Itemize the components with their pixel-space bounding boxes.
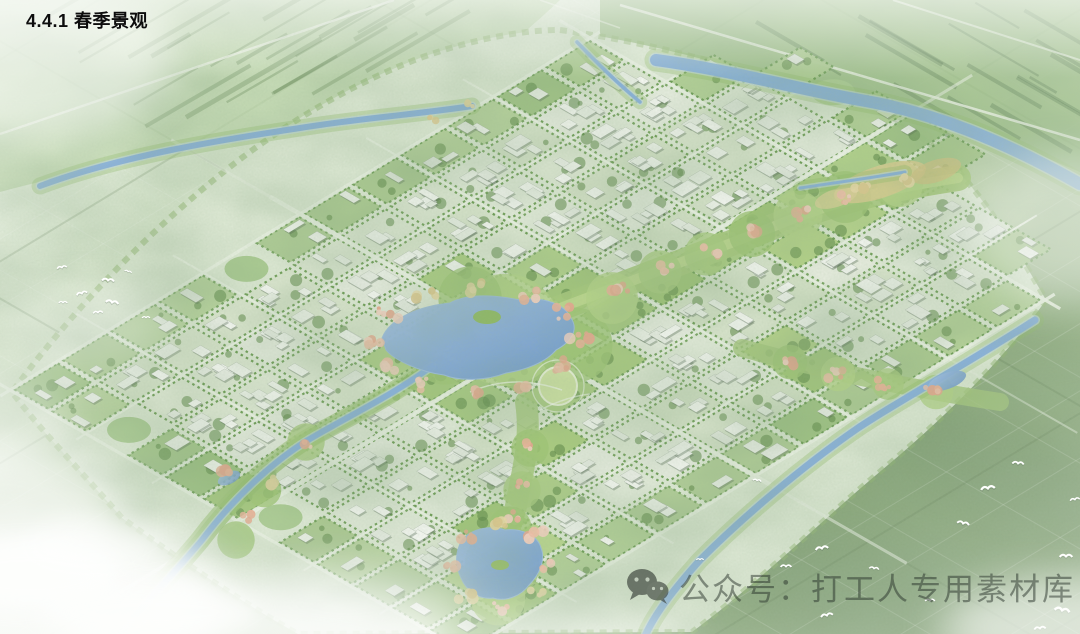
aerial-masterplan-rendering: [0, 0, 1080, 634]
edge-vignette: [0, 0, 1080, 634]
page-title: 4.4.1 春季景观: [26, 7, 148, 33]
document-page: 4.4.1 春季景观 公众号：打工人专用素材库: [0, 0, 1080, 634]
